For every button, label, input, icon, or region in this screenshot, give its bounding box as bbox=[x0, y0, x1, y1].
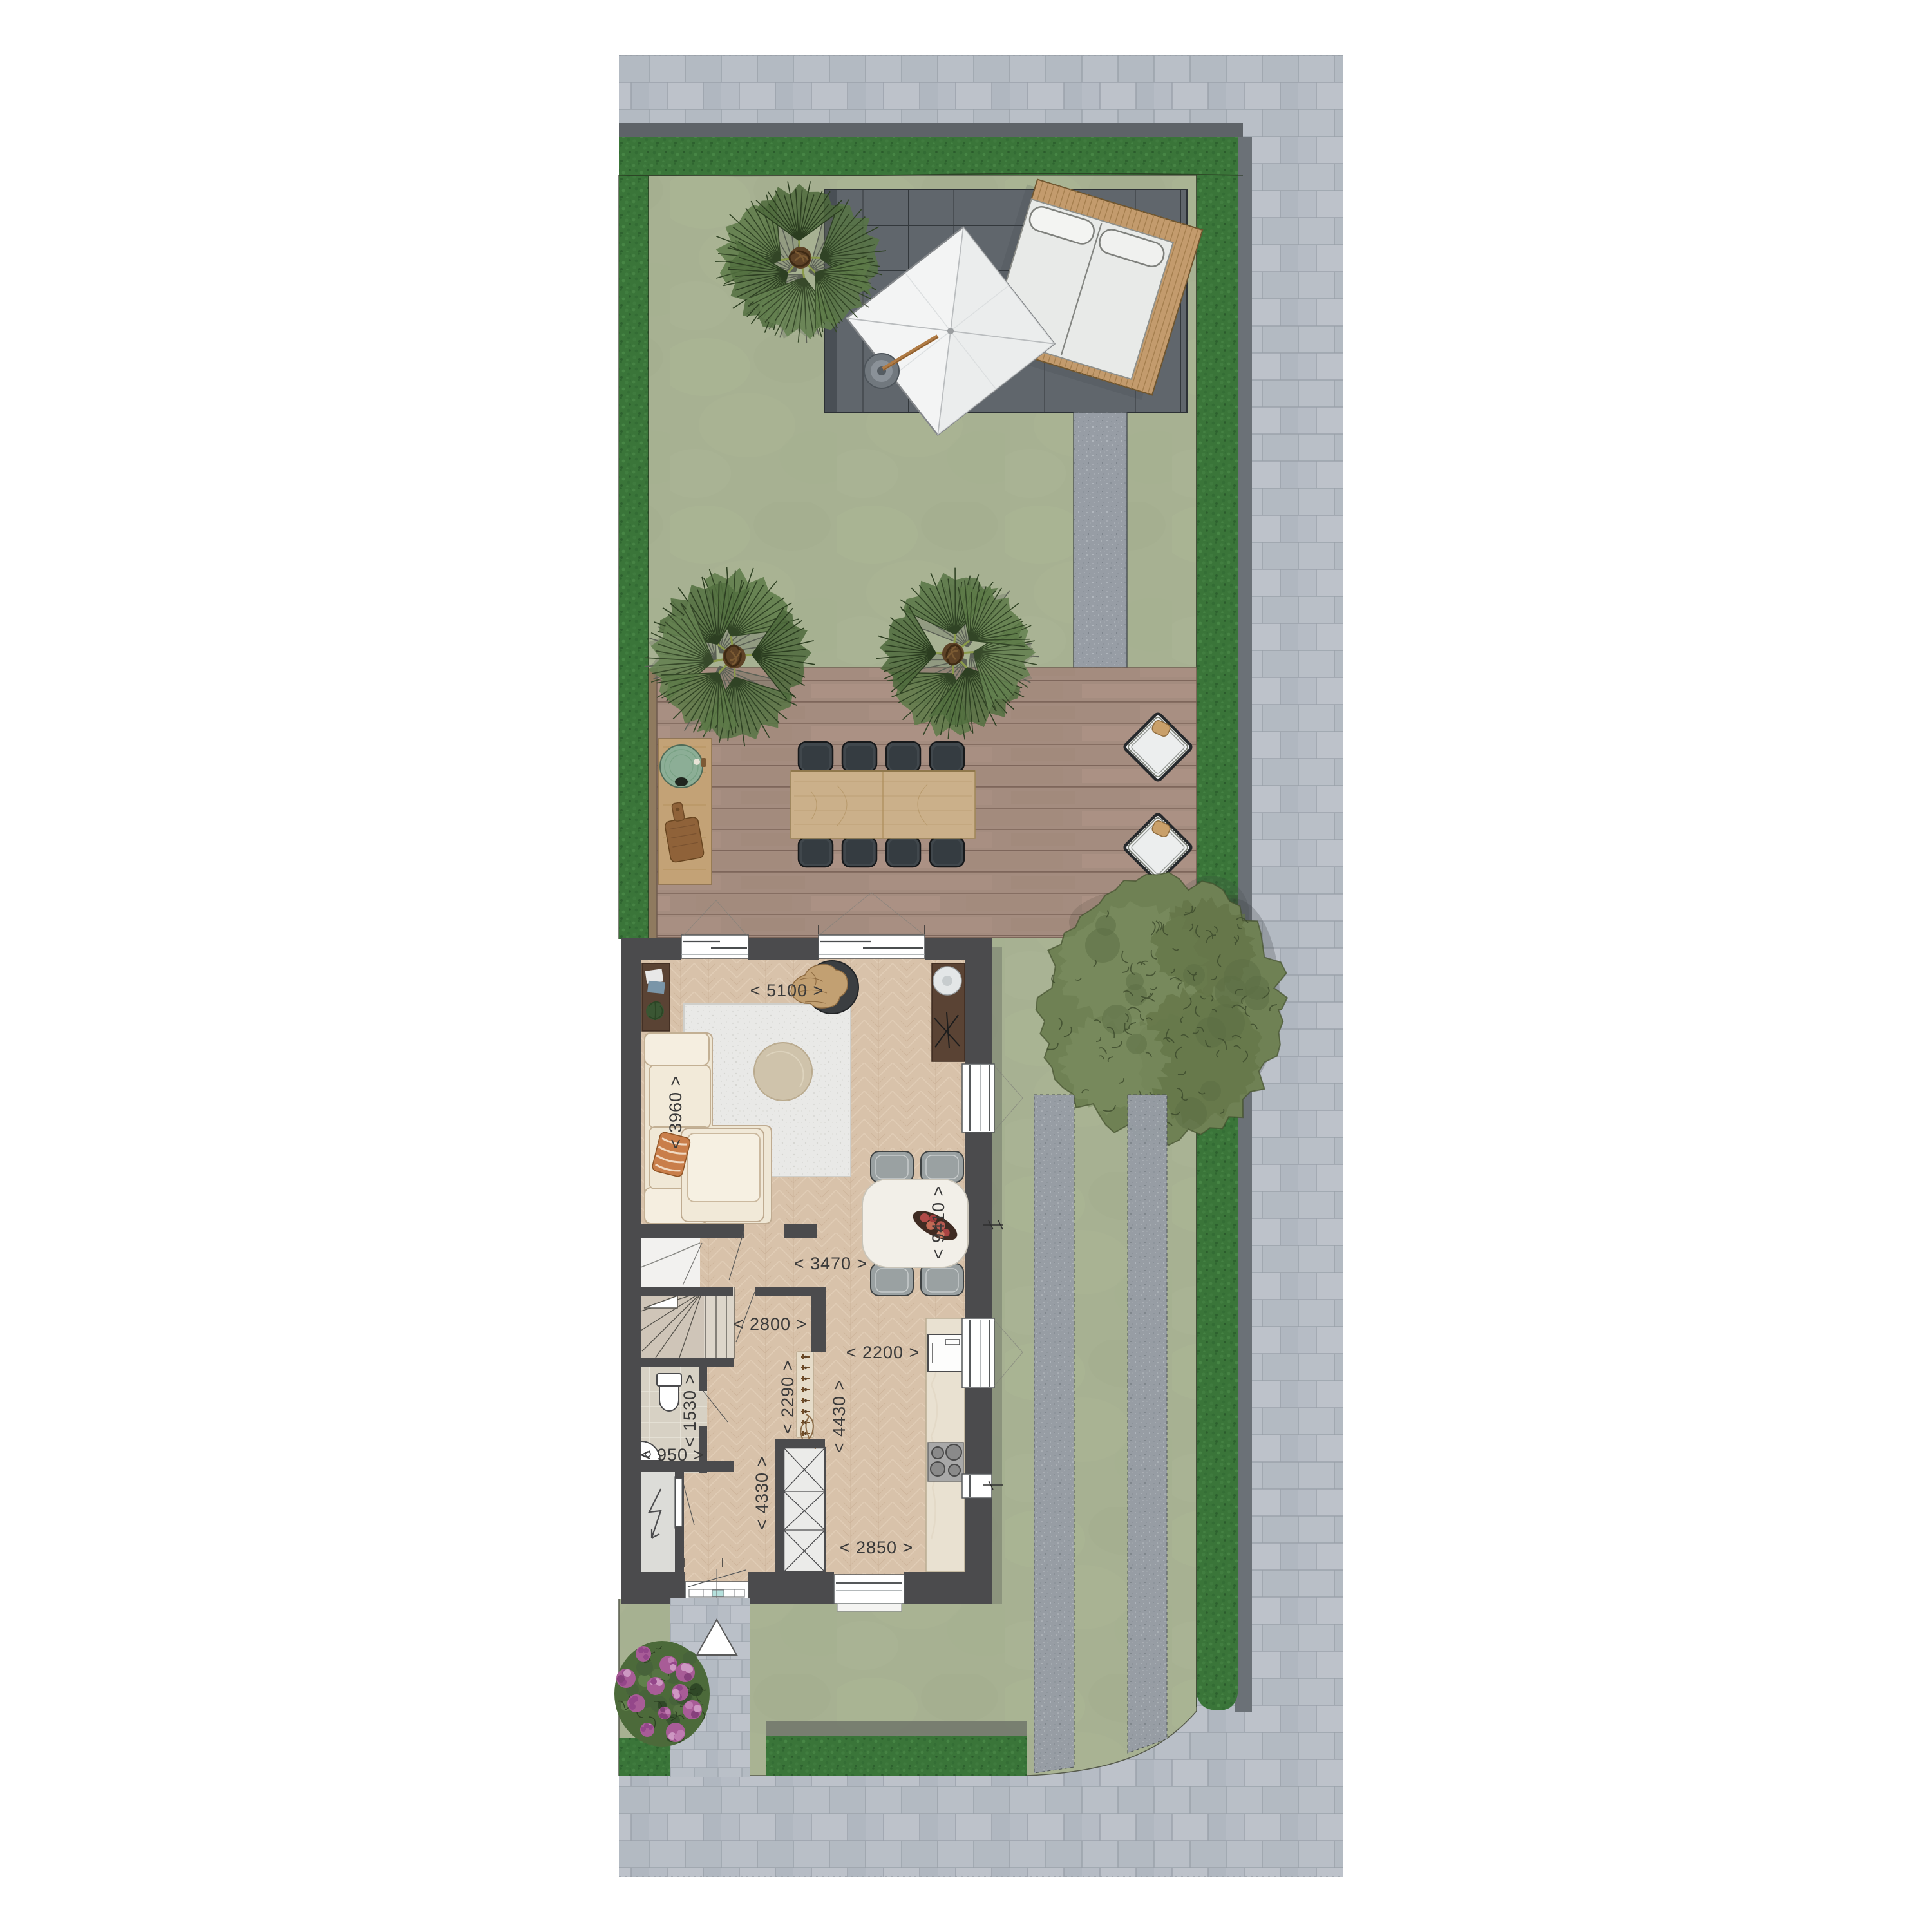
svg-text:< 2850 >: < 2850 > bbox=[840, 1538, 914, 1557]
svg-text:< 3470 >: < 3470 > bbox=[794, 1254, 868, 1273]
svg-text:< 4430 >: < 4430 > bbox=[829, 1379, 849, 1454]
svg-text:< 2290 >: < 2290 > bbox=[778, 1360, 797, 1434]
svg-text:< 2200 >: < 2200 > bbox=[846, 1343, 920, 1362]
svg-text:< 9410 >: < 9410 > bbox=[929, 1186, 948, 1260]
svg-text:< 1530 >: < 1530 > bbox=[680, 1374, 699, 1448]
svg-text:< 950 >: < 950 > bbox=[641, 1445, 705, 1464]
svg-text:< 5100 >: < 5100 > bbox=[750, 981, 824, 1000]
svg-text:< 2800 >: < 2800 > bbox=[734, 1314, 808, 1334]
svg-text:< 3960 >: < 3960 > bbox=[666, 1075, 685, 1150]
svg-text:< 4330 >: < 4330 > bbox=[752, 1456, 772, 1530]
